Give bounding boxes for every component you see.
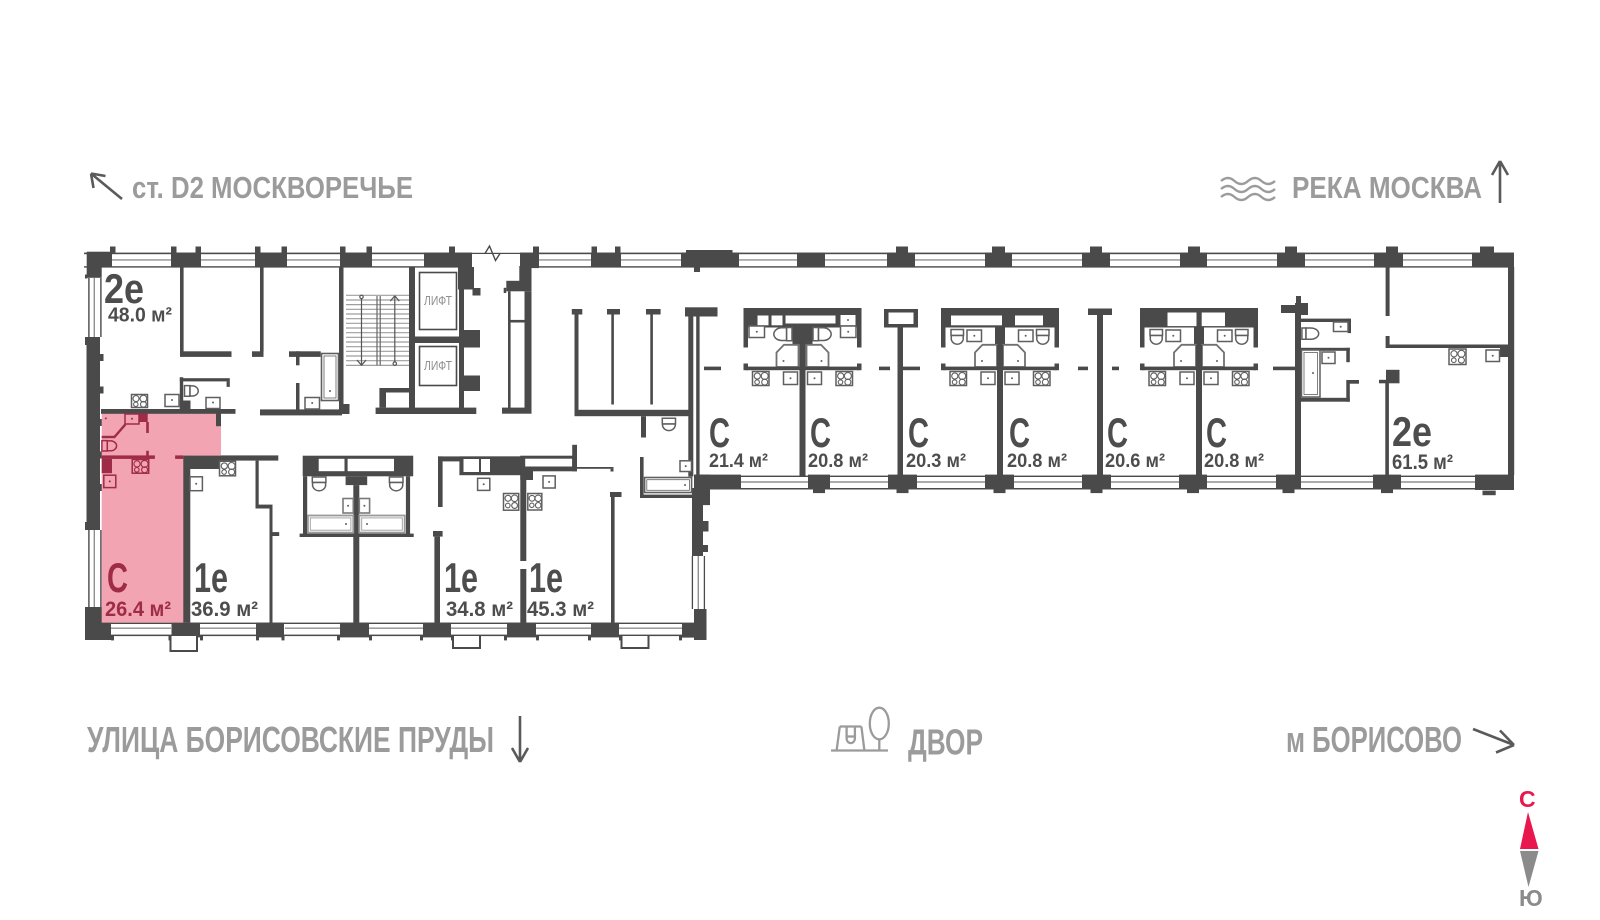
svg-text:20.8 м²: 20.8 м² (808, 451, 868, 472)
svg-text:ДВОР: ДВОР (908, 722, 983, 763)
svg-text:1е: 1е (444, 554, 478, 601)
svg-text:ЛИФТ: ЛИФТ (424, 359, 452, 373)
svg-text:ст. D2 МОСКВОРЕЧЬЕ: ст. D2 МОСКВОРЕЧЬЕ (132, 170, 413, 205)
svg-text:ЛИФТ: ЛИФТ (424, 294, 452, 308)
svg-text:61.5 м²: 61.5 м² (1392, 451, 1453, 474)
svg-text:1е: 1е (194, 554, 228, 601)
svg-text:48.0 м²: 48.0 м² (108, 305, 172, 327)
svg-text:С: С (908, 409, 929, 456)
svg-text:26.4 м²: 26.4 м² (105, 598, 171, 621)
svg-text:м БОРИСОВО: м БОРИСОВО (1286, 719, 1462, 760)
svg-text:20.6 м²: 20.6 м² (1105, 451, 1165, 472)
svg-text:20.3 м²: 20.3 м² (906, 451, 966, 472)
svg-text:С: С (1519, 786, 1536, 812)
svg-text:1е: 1е (529, 554, 563, 601)
svg-text:20.8 м²: 20.8 м² (1007, 451, 1067, 472)
svg-text:36.9 м²: 36.9 м² (191, 598, 258, 621)
svg-text:С: С (709, 409, 730, 456)
svg-text:20.8 м²: 20.8 м² (1204, 451, 1264, 472)
svg-text:21.4 м²: 21.4 м² (709, 451, 768, 472)
svg-text:С: С (810, 409, 831, 456)
svg-text:45.3 м²: 45.3 м² (527, 598, 594, 621)
svg-text:2е: 2е (1392, 408, 1432, 455)
svg-text:С: С (1107, 409, 1128, 456)
svg-text:34.8 м²: 34.8 м² (446, 598, 513, 621)
svg-text:С: С (1206, 409, 1227, 456)
svg-text:Ю: Ю (1519, 885, 1543, 911)
svg-text:РЕКА МОСКВА: РЕКА МОСКВА (1292, 170, 1482, 205)
svg-text:С: С (107, 554, 128, 601)
svg-text:С: С (1009, 409, 1030, 456)
svg-text:УЛИЦА БОРИСОВСКИЕ ПРУДЫ: УЛИЦА БОРИСОВСКИЕ ПРУДЫ (87, 719, 494, 760)
